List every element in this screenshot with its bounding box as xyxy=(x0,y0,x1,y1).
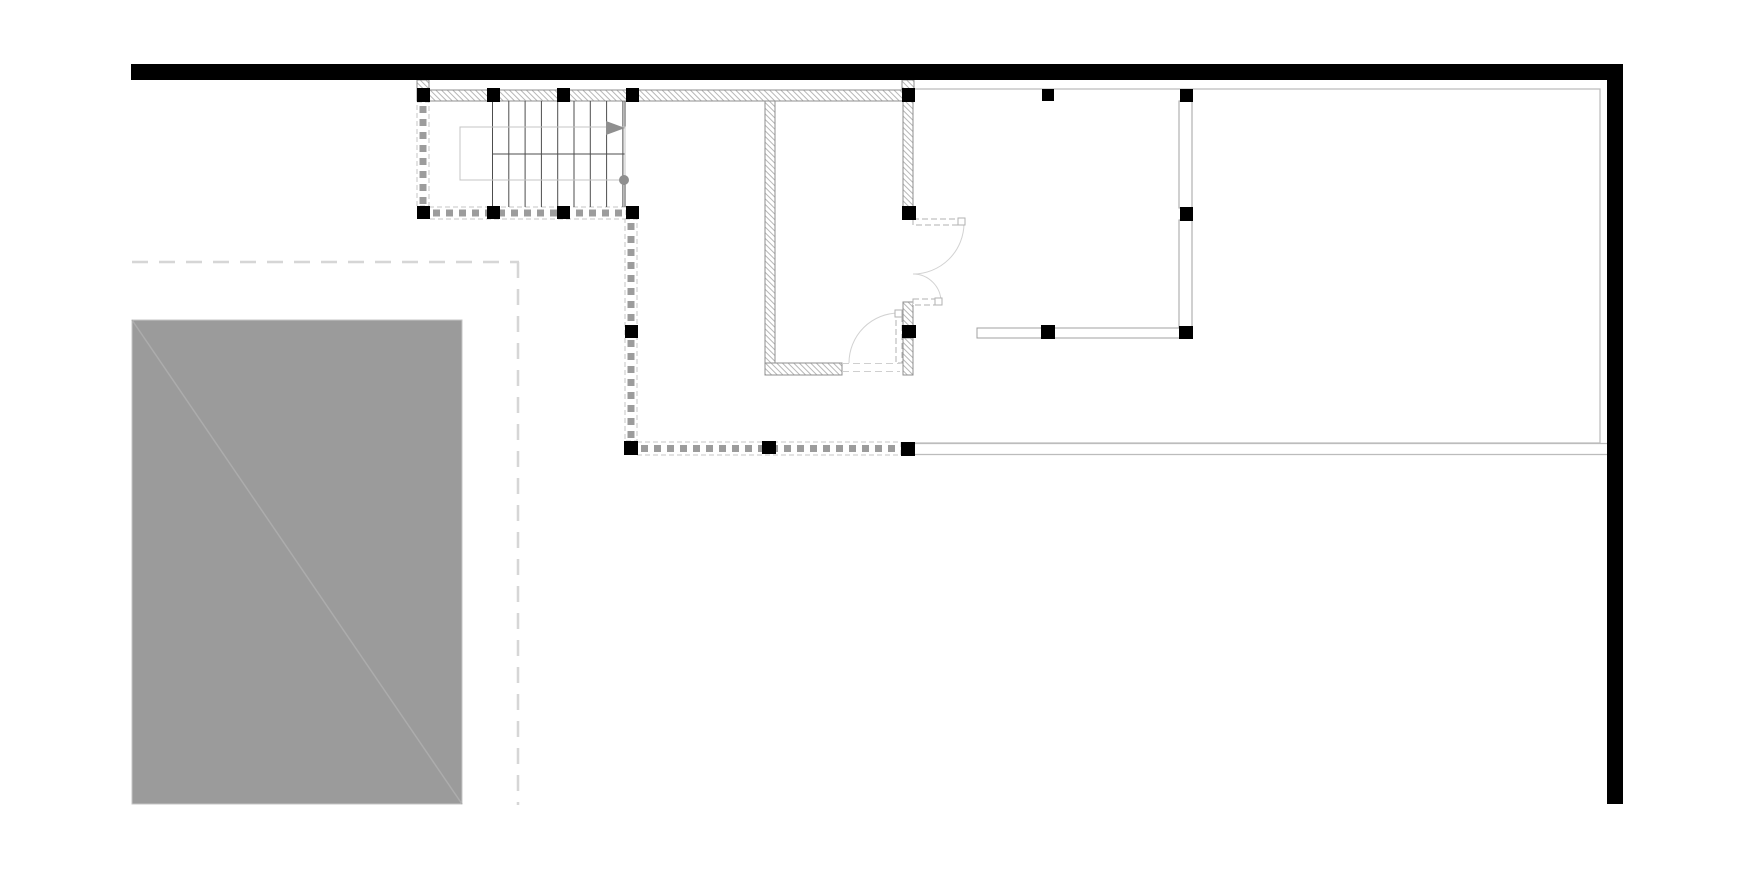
door-upper-hinge-block xyxy=(958,218,965,225)
door-upper-leaf xyxy=(913,219,964,225)
column xyxy=(1041,325,1055,339)
door-bottom-hinge-block xyxy=(895,310,902,317)
column xyxy=(625,325,638,338)
exterior-wall-right xyxy=(1607,80,1623,804)
columns-layer xyxy=(417,88,1193,456)
column xyxy=(626,206,639,219)
column xyxy=(557,88,570,102)
exterior-wall-top xyxy=(131,64,1623,80)
floor-plan-page xyxy=(0,0,1754,871)
terrace-outline xyxy=(914,89,1600,443)
column xyxy=(902,206,916,220)
stair-direction-arrow-icon xyxy=(606,121,625,135)
hatched-wall-layer xyxy=(417,80,914,375)
column xyxy=(1042,89,1054,101)
column xyxy=(902,88,915,102)
floor-plan-svg xyxy=(0,0,1754,871)
column xyxy=(487,88,500,102)
door-upper-swing-arc xyxy=(913,223,964,274)
column xyxy=(901,442,915,456)
partition-layer xyxy=(977,101,1192,338)
column xyxy=(1180,89,1193,102)
room-wall-right-mid xyxy=(903,302,913,326)
stair-start-marker-icon xyxy=(619,175,629,185)
stairs-layer xyxy=(460,101,629,207)
column xyxy=(1179,326,1193,339)
room-wall-right-upper xyxy=(903,101,913,207)
partition-bottom xyxy=(977,328,1180,338)
column xyxy=(1180,207,1193,221)
column xyxy=(417,88,430,102)
column xyxy=(626,88,639,102)
column xyxy=(902,325,916,338)
column xyxy=(487,206,500,219)
column xyxy=(762,441,776,454)
column xyxy=(417,206,430,219)
room-wall-right-lower xyxy=(903,338,913,375)
door-bottom-leaf xyxy=(896,313,902,363)
partition-right-upper xyxy=(1179,101,1192,208)
terrace-layer xyxy=(914,89,1607,455)
room-wall-bottom xyxy=(765,363,842,375)
door-mid-hinge-block xyxy=(935,298,942,305)
site-layer xyxy=(132,262,519,805)
partition-right-lower xyxy=(1179,220,1192,327)
room-wall-left xyxy=(765,101,775,375)
column xyxy=(557,206,570,219)
door-bottom-swing-arc xyxy=(849,313,899,363)
column xyxy=(624,441,638,455)
dashed-wall-layer xyxy=(417,102,901,455)
